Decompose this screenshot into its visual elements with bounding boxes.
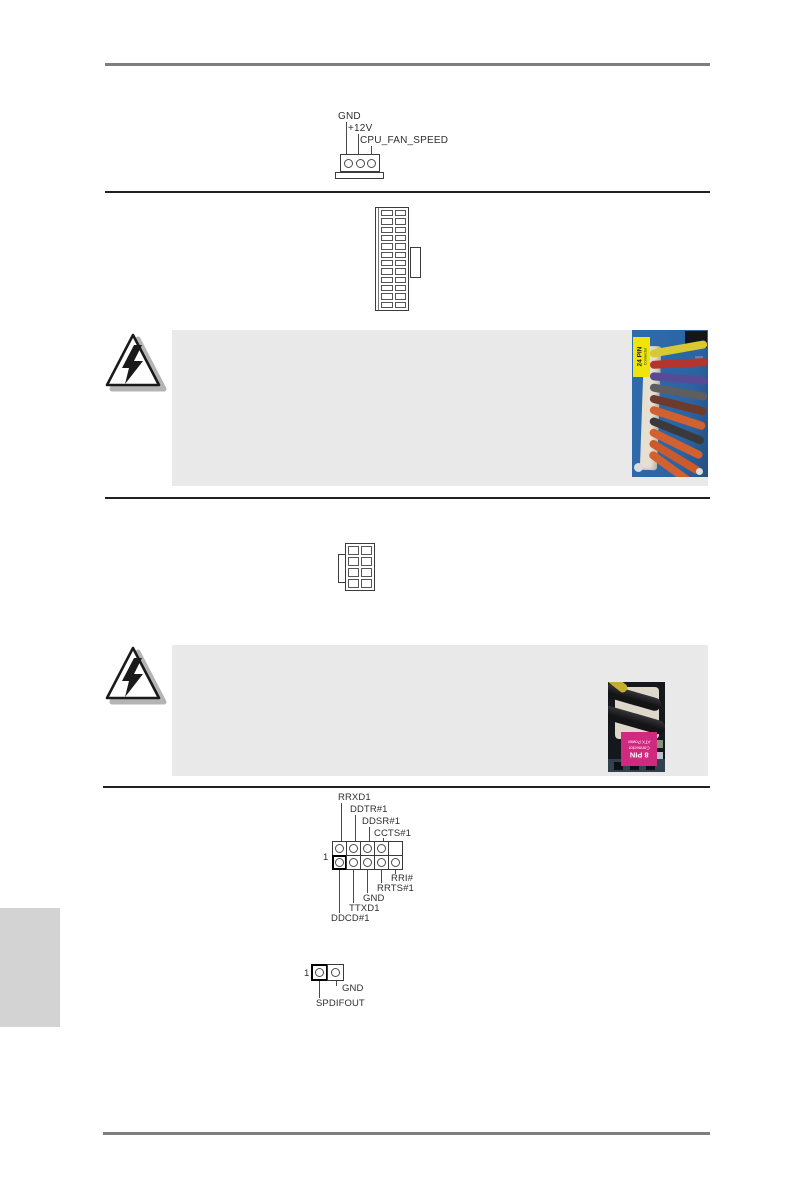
- leader-line: [336, 981, 337, 986]
- leader-line: [339, 870, 340, 913]
- pin-square: [395, 260, 407, 266]
- pin-square: [348, 546, 359, 555]
- pin-square: [381, 293, 393, 299]
- pin-circle: [356, 159, 365, 168]
- top-rule: [105, 63, 710, 66]
- pin-square: [395, 210, 407, 216]
- pin-cell-empty: [388, 841, 403, 856]
- leader-line: [341, 803, 342, 841]
- pin-square: [361, 579, 372, 588]
- warning-icon: [101, 331, 167, 401]
- pin-label: DDSR#1: [362, 817, 400, 827]
- pin-square: [395, 285, 407, 291]
- 24pin-sticker: 24 PIN Connector: [633, 337, 650, 377]
- pin-cell: [346, 841, 361, 856]
- wire: [650, 358, 708, 369]
- pin-cell: [374, 841, 389, 856]
- pin-label-12v: +12V: [348, 124, 372, 135]
- pin-circle: [367, 159, 376, 168]
- pin-square: [381, 210, 393, 216]
- bottom-rule: [103, 1132, 710, 1135]
- photo-wires: [650, 350, 708, 477]
- leader-line: [367, 870, 368, 893]
- pin-square: [348, 568, 359, 577]
- atx-24pin-body: [375, 207, 409, 311]
- pin-square: [361, 546, 372, 555]
- pin-square: [381, 277, 393, 283]
- screw-hole: [634, 463, 643, 472]
- pin-square: [395, 293, 407, 299]
- pin-label-fan-speed: CPU_FAN_SPEED: [360, 136, 448, 147]
- header-row-bottom: [332, 855, 402, 870]
- pin-label: SPDIFOUT: [316, 999, 365, 1009]
- wire: [650, 372, 708, 385]
- pin-square: [395, 235, 407, 241]
- atx24-connector-photo: 24 PIN Connector: [632, 330, 708, 477]
- pin-square: [395, 252, 407, 258]
- pin-square: [361, 557, 372, 566]
- fan-header-body: [340, 154, 380, 172]
- pin-square: [395, 227, 407, 233]
- pin-square: [381, 260, 393, 266]
- pin-square: [395, 218, 407, 224]
- header-row-top: [332, 841, 402, 856]
- pin-square: [395, 277, 407, 283]
- manual-page: GND +12V CPU_FAN_SPEED: [0, 0, 795, 1192]
- language-tab: [0, 908, 60, 1027]
- pin-label: DDTR#1: [350, 805, 388, 815]
- spdif-header-body: [311, 964, 343, 981]
- note-box-atx8: 8 PIN Connector ATX Power: [172, 645, 708, 776]
- atx-24pin-connector-diagram: [370, 204, 430, 316]
- fan-header-base: [335, 172, 384, 179]
- section-separator: [105, 497, 710, 499]
- atx-8pin-body: [345, 543, 375, 591]
- pin-square: [381, 218, 393, 224]
- cpu-fan-connector-diagram: GND +12V CPU_FAN_SPEED: [330, 106, 480, 186]
- sticker-text: Connector: [644, 337, 648, 377]
- warning-icon: [101, 644, 167, 714]
- pin-label-gnd: GND: [338, 112, 361, 123]
- screw-hole: [696, 468, 703, 475]
- leader-line: [371, 146, 372, 154]
- pin-cell: [332, 841, 347, 856]
- section-separator: [105, 191, 710, 193]
- leader-line: [346, 122, 347, 154]
- serial-port-header-diagram: RRXD1 DDTR#1 DDSR#1 CCTS#1 1: [298, 788, 468, 930]
- 8pin-sticker: 8 PIN Connector ATX Power: [621, 732, 657, 766]
- pin-cell-1: [332, 855, 347, 870]
- pin-square: [348, 579, 359, 588]
- sticker-text: 24 PIN: [637, 337, 644, 377]
- pin-square: [395, 302, 407, 308]
- pin-label: DDCD#1: [331, 914, 370, 924]
- sticker-text: 8 PIN: [628, 750, 650, 759]
- pin-square: [348, 557, 359, 566]
- pin-cell: [327, 964, 344, 981]
- pin-cell-1: [311, 964, 328, 981]
- pin1-marker: 1: [323, 853, 328, 863]
- pin-square: [395, 243, 407, 249]
- wire: [649, 340, 708, 358]
- connector-latch: [410, 247, 421, 278]
- pin-cell: [360, 855, 375, 870]
- spdif-header-diagram: 1 GND SPDIFOUT: [300, 962, 390, 1014]
- pin-cell: [374, 855, 389, 870]
- pin-square: [395, 268, 407, 274]
- pin-label: GND: [342, 984, 363, 994]
- note-box-atx24: 24 PIN Connector: [172, 330, 708, 486]
- leader-line: [381, 870, 382, 883]
- pin-square: [381, 285, 393, 291]
- pin-label: CCTS#1: [374, 829, 411, 839]
- pin-square: [381, 243, 393, 249]
- atx8-connector-photo: 8 PIN Connector ATX Power: [608, 682, 665, 772]
- pin-square: [361, 568, 372, 577]
- pin-square: [381, 302, 393, 308]
- leader-line: [369, 827, 370, 841]
- serial-header-body: [332, 841, 402, 870]
- leader-line: [319, 981, 320, 998]
- pin-square: [381, 227, 393, 233]
- pin-circle: [344, 159, 353, 168]
- leader-line: [355, 815, 356, 841]
- pin-square: [381, 268, 393, 274]
- pin-square: [381, 252, 393, 258]
- atx-8pin-connector-diagram: [338, 542, 383, 596]
- sticker-text: Connector: [628, 744, 650, 750]
- pin-cell: [388, 855, 403, 870]
- pin-cell: [360, 841, 375, 856]
- connector-wall: [378, 208, 379, 310]
- leader-line: [358, 134, 359, 154]
- pin-label: RRXD1: [338, 793, 371, 803]
- pin-cell: [346, 855, 361, 870]
- sticker-text: ATX Power: [628, 739, 650, 745]
- pin1-marker: 1: [304, 969, 309, 979]
- pin-square: [381, 235, 393, 241]
- leader-line: [353, 870, 354, 903]
